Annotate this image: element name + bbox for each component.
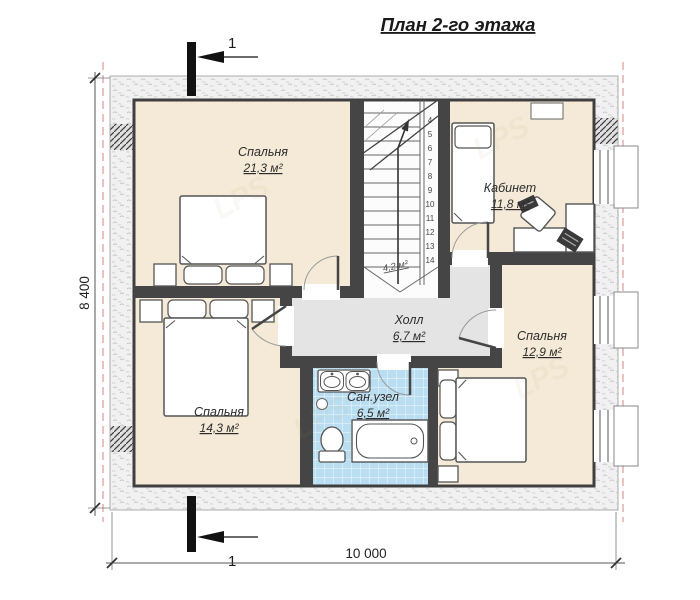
step-number: 6: [428, 144, 433, 153]
nightstand: [252, 300, 274, 322]
room-name-office: Кабинет: [484, 181, 536, 195]
nightstand: [438, 466, 458, 482]
room-area-hall: 6,7 м²: [393, 329, 426, 343]
dim-height-label: 8 400: [77, 276, 92, 310]
room-area-bedroom3: 14,3 м²: [200, 421, 240, 435]
step-number: 13: [426, 242, 435, 251]
window-sill-office-top: [531, 103, 563, 119]
mattress: [164, 318, 248, 416]
pillow: [210, 300, 248, 318]
pillow: [184, 266, 222, 284]
double-sink-vanity: [318, 370, 370, 392]
nightstand: [154, 264, 176, 286]
step-number: 14: [426, 256, 435, 265]
step-number: 8: [428, 172, 433, 181]
step-number: 12: [426, 228, 435, 237]
room-area-office: 11,8 м²: [491, 197, 530, 211]
dim-width-label: 10 000: [345, 546, 386, 561]
room-area-bathroom: 6,5 м²: [357, 406, 390, 420]
wall-bathroom-right: [428, 356, 438, 486]
window-bedroom2-upper: [594, 292, 638, 348]
floor-plan-canvas: 4 5 6 7 8 9 10 11 12 13 14 4,2 м²: [0, 0, 700, 600]
dimension-width: 10 000: [106, 512, 625, 570]
wall-stair-right: [438, 100, 450, 298]
window-office: [594, 146, 638, 208]
floor-hall: [292, 298, 490, 356]
wall-post-hatch: [110, 426, 134, 452]
wall-post-hatch: [594, 118, 618, 144]
nightstand: [140, 300, 162, 322]
floor-hall-notch: [450, 265, 490, 298]
room-name-hall: Холл: [394, 313, 424, 327]
step-number: 11: [426, 214, 435, 223]
bathtub: [352, 420, 428, 462]
step-number: 5: [428, 130, 433, 139]
wall-post-hatch: [110, 124, 134, 150]
room-name-bedroom2: Спальня: [517, 329, 567, 343]
step-number: 4: [428, 116, 433, 125]
window-bedroom2-lower: [594, 406, 638, 466]
wall-stair-left: [350, 100, 364, 298]
faucet: [356, 373, 359, 376]
pillow: [440, 380, 456, 418]
section-number: 1: [228, 553, 236, 570]
step-number: 7: [428, 158, 433, 167]
faucet: [331, 373, 334, 376]
pillow: [226, 266, 264, 284]
room-name-bedroom1: Спальня: [238, 145, 288, 159]
page-title: План 2-го этажа: [381, 14, 536, 35]
pillow: [168, 300, 206, 318]
step-number: 10: [426, 200, 435, 209]
dimension-height: 8 400: [77, 72, 110, 516]
section-number: 1: [228, 35, 236, 52]
room-name-bathroom: Сан.узел: [347, 390, 399, 404]
nightstand: [270, 264, 292, 286]
step-number: 9: [428, 186, 433, 195]
room-area-bedroom1: 21,3 м²: [243, 161, 284, 175]
room-name-bedroom3: Спальня: [194, 405, 244, 419]
pillow: [440, 422, 456, 460]
